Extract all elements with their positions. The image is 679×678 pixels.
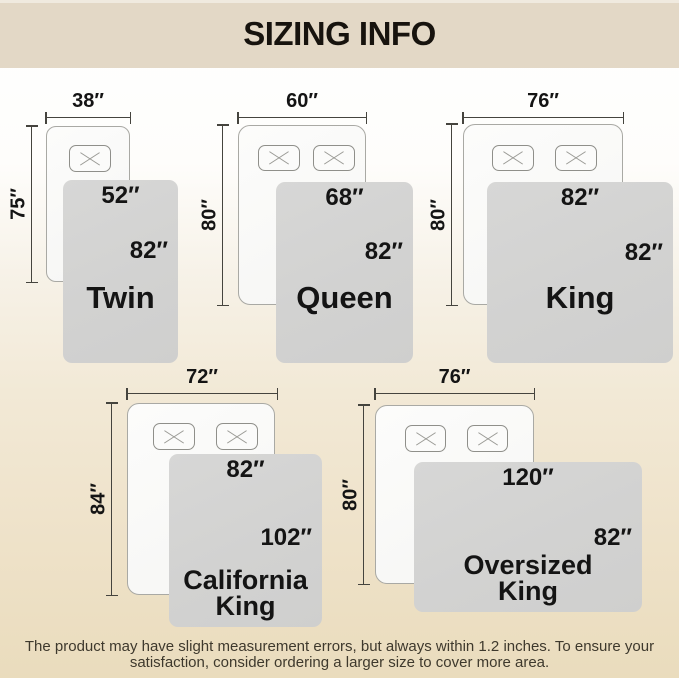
california-king-bed-width-label: 72″ xyxy=(186,366,218,389)
oversized-king-bed-length-dimension: 80″ xyxy=(363,405,364,584)
king-blanket-width-label: 82″ xyxy=(561,184,599,212)
page-title: SIZING INFO xyxy=(243,15,436,53)
queen-blanket-length-label: 82″ xyxy=(365,238,403,266)
king-name-label: King xyxy=(546,282,615,313)
oversized-king-blanket-width-label: 120″ xyxy=(502,464,554,492)
twin-name-label: Twin xyxy=(86,282,154,313)
oversized-king-bed-length-label: 80″ xyxy=(340,479,363,511)
twin-blanket-length-label: 82″ xyxy=(130,237,168,265)
pillow-icon xyxy=(69,145,111,172)
header-band: SIZING INFO xyxy=(0,0,679,68)
california-king-blanket: 82″ 102″ California King xyxy=(169,454,322,627)
sizing-info-page: SIZING INFO 38″ 75″ 52″ 82″ Twin 60″ 80″ xyxy=(0,0,679,678)
california-king-bed-length-label: 84″ xyxy=(88,483,111,515)
twin-bed-width-dimension: 38″ xyxy=(46,117,130,118)
queen-blanket: 68″ 82″ Queen xyxy=(276,182,413,363)
queen-bed-length-dimension: 80″ xyxy=(222,125,223,305)
king-bed-width-dimension: 76″ xyxy=(463,117,623,118)
pillow-icon xyxy=(405,425,446,452)
california-king-name-label: California King xyxy=(171,567,321,619)
twin-blanket: 52″ 82″ Twin xyxy=(63,180,178,363)
pillow-icon xyxy=(467,425,508,452)
oversized-king-bed-width-dimension: 76″ xyxy=(375,393,534,394)
oversized-king-blanket: 120″ 82″ Oversized King xyxy=(414,462,642,612)
king-bed-width-label: 76″ xyxy=(527,90,559,113)
disclaimer-line-2: satisfaction, consider ordering a larger… xyxy=(0,655,679,671)
disclaimer-line-1: The product may have slight measurement … xyxy=(0,639,679,655)
california-king-bed-length-dimension: 84″ xyxy=(111,403,112,595)
oversized-king-blanket-length-label: 82″ xyxy=(594,524,632,552)
pillow-icon xyxy=(258,145,300,171)
california-king-bed-width-dimension: 72″ xyxy=(127,393,277,394)
king-blanket: 82″ 82″ King xyxy=(487,182,673,363)
pillow-icon xyxy=(313,145,355,171)
queen-bed-length-label: 80″ xyxy=(199,199,222,231)
california-king-blanket-width-label: 82″ xyxy=(226,456,264,484)
pillow-icon xyxy=(216,423,258,450)
queen-name-label: Queen xyxy=(296,282,392,313)
twin-bed-width-label: 38″ xyxy=(72,90,104,113)
disclaimer-note: The product may have slight measurement … xyxy=(0,639,679,670)
king-bed-length-label: 80″ xyxy=(428,199,451,231)
pillow-icon xyxy=(492,145,534,171)
twin-bed-length-label: 75″ xyxy=(8,188,31,220)
pillow-icon xyxy=(555,145,597,171)
twin-blanket-width-label: 52″ xyxy=(101,182,139,210)
queen-blanket-width-label: 68″ xyxy=(325,184,363,212)
pillow-icon xyxy=(153,423,195,450)
queen-bed-width-label: 60″ xyxy=(286,90,318,113)
queen-bed-width-dimension: 60″ xyxy=(238,117,366,118)
oversized-king-bed-width-label: 76″ xyxy=(439,366,471,389)
king-blanket-length-label: 82″ xyxy=(625,239,663,267)
twin-bed-length-dimension: 75″ xyxy=(31,126,32,282)
california-king-blanket-length-label: 102″ xyxy=(260,524,312,552)
oversized-king-name-label: Oversized King xyxy=(443,552,613,604)
king-bed-length-dimension: 80″ xyxy=(451,124,452,305)
